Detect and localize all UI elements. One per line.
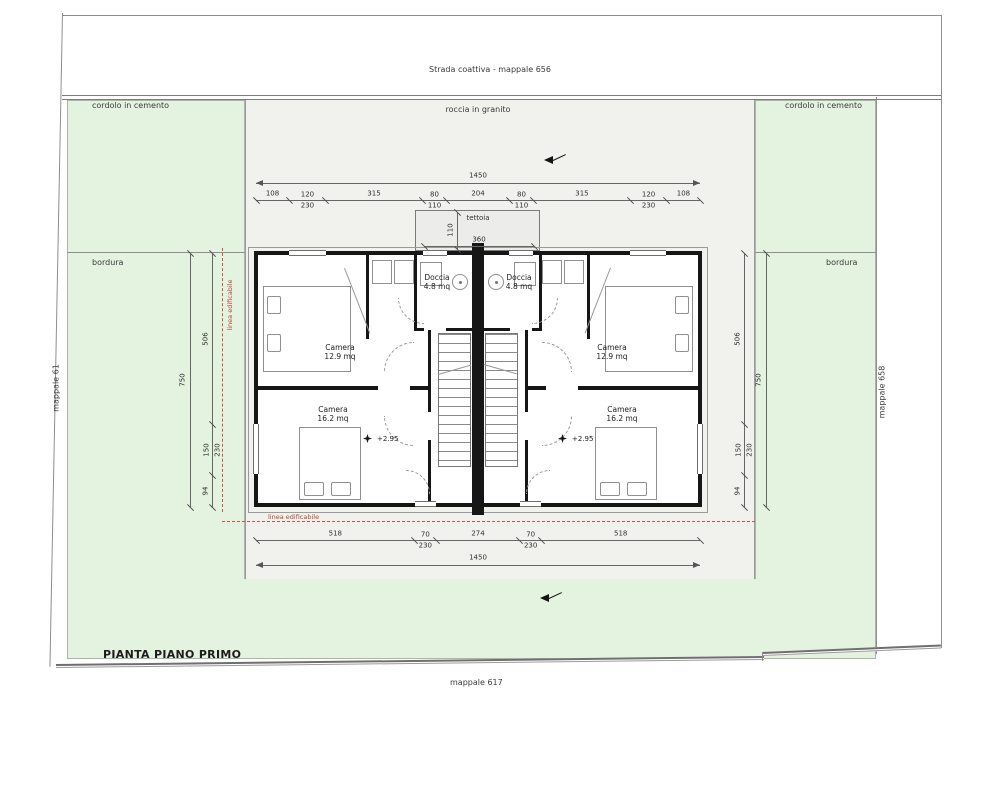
room-label-doccia-right: Doccia 4.8 mq bbox=[506, 273, 532, 291]
curb-right-label: cordolo in cemento bbox=[762, 102, 862, 111]
window-top-left-120 bbox=[289, 250, 326, 256]
room-area: 12.9 mq bbox=[324, 352, 355, 361]
wardrobe bbox=[394, 260, 414, 284]
staircase-right bbox=[485, 333, 518, 467]
level-label-left: +2.95 bbox=[377, 435, 398, 443]
wardrobe bbox=[542, 260, 562, 284]
lot-boundary-top bbox=[62, 15, 941, 16]
room-area: 4.8 mq bbox=[506, 282, 532, 291]
road-label: Strada coattiva - mappale 656 bbox=[429, 66, 551, 75]
wall-doccia-bottom-left-b bbox=[446, 328, 472, 331]
bordura-line-left bbox=[67, 252, 245, 253]
garden-bottom bbox=[67, 579, 876, 659]
room-name: Doccia bbox=[424, 273, 450, 282]
wall-between-cameras-right-a bbox=[578, 386, 698, 390]
level-label-right: +2.95 bbox=[572, 435, 593, 443]
room-label-camera-right-bottom: Camera 16.2 mq bbox=[606, 405, 637, 423]
window-top-right-120 bbox=[630, 250, 666, 256]
bordura-left-label: bordura bbox=[92, 259, 123, 268]
road-edge-line-1 bbox=[62, 95, 941, 96]
parcel-bottom-label: mappale 617 bbox=[450, 679, 503, 688]
parcel-right-label: mappale 658 bbox=[878, 366, 887, 419]
room-name: Doccia bbox=[506, 273, 532, 282]
wall-doccia-bottom-right-b bbox=[484, 328, 510, 331]
garden-left bbox=[67, 100, 245, 659]
wall-doccia-bottom-right-a bbox=[532, 328, 542, 331]
wc-right bbox=[488, 274, 504, 290]
door-top-left-80 bbox=[423, 250, 447, 256]
wall-doccia-bottom-left-a bbox=[414, 328, 424, 331]
lot-boundary-left bbox=[49, 13, 63, 667]
pillow bbox=[627, 482, 647, 496]
building-line-label-vertical: linea edificabile bbox=[226, 279, 234, 330]
wall-between-cameras-right-b bbox=[526, 386, 546, 390]
wc-left bbox=[452, 274, 468, 290]
pillow bbox=[675, 296, 689, 314]
lot-boundary-jog bbox=[762, 652, 763, 661]
room-area: 12.9 mq bbox=[596, 352, 627, 361]
staircase-left bbox=[438, 333, 471, 467]
wall-between-cameras-left-b bbox=[410, 386, 430, 390]
wall-between-cameras-left-a bbox=[258, 386, 378, 390]
pillow bbox=[267, 334, 281, 352]
wardrobe bbox=[372, 260, 392, 284]
party-wall bbox=[472, 243, 484, 515]
pillow bbox=[304, 482, 324, 496]
parcel-boundary-far-right bbox=[941, 15, 942, 648]
building-line-vertical bbox=[222, 248, 223, 512]
garden-right bbox=[755, 100, 876, 654]
bordura-line-right bbox=[755, 252, 876, 253]
pillow bbox=[331, 482, 351, 496]
room-name: Camera bbox=[596, 343, 627, 352]
parcel-left-label: mappale 61 bbox=[52, 364, 61, 412]
section-marker-icon bbox=[544, 156, 553, 164]
bordura-right-label: bordura bbox=[826, 259, 857, 268]
room-area: 16.2 mq bbox=[606, 414, 637, 423]
room-label-camera-left-top: Camera 12.9 mq bbox=[324, 343, 355, 361]
room-area: 16.2 mq bbox=[317, 414, 348, 423]
pillow bbox=[267, 296, 281, 314]
room-name: Camera bbox=[317, 405, 348, 414]
canopy-label: tettoia bbox=[466, 215, 489, 222]
road-edge-material-label: roccia in granito bbox=[446, 106, 511, 115]
door-top-right-80 bbox=[509, 250, 533, 256]
curb-left-label: cordolo in cemento bbox=[92, 102, 169, 111]
wall-hall-right-a bbox=[525, 330, 528, 412]
page-title: PIANTA PIANO PRIMO bbox=[103, 648, 241, 661]
door-bottom-left-70 bbox=[415, 501, 436, 507]
wall-hall-right-b bbox=[525, 440, 528, 507]
building-line-horizontal bbox=[222, 521, 755, 522]
room-area: 4.8 mq bbox=[424, 282, 450, 291]
pillow bbox=[675, 334, 689, 352]
wall-hall-left-b bbox=[428, 440, 431, 507]
wall-hall-left-a bbox=[428, 330, 431, 412]
pillow bbox=[600, 482, 620, 496]
window-side-left-150 bbox=[253, 424, 259, 474]
floor-plan-canvas: Strada coattiva - mappale 656 roccia in … bbox=[0, 0, 1000, 788]
room-label-camera-left-bottom: Camera 16.2 mq bbox=[317, 405, 348, 423]
section-marker-icon bbox=[540, 594, 549, 602]
wardrobe bbox=[564, 260, 584, 284]
building-line-label: linea edificabile bbox=[268, 513, 319, 521]
window-side-right-150 bbox=[697, 424, 703, 474]
room-name: Camera bbox=[324, 343, 355, 352]
door-bottom-right-70 bbox=[520, 501, 541, 507]
room-label-doccia-left: Doccia 4.8 mq bbox=[424, 273, 450, 291]
room-name: Camera bbox=[606, 405, 637, 414]
room-label-camera-right-top: Camera 12.9 mq bbox=[596, 343, 627, 361]
